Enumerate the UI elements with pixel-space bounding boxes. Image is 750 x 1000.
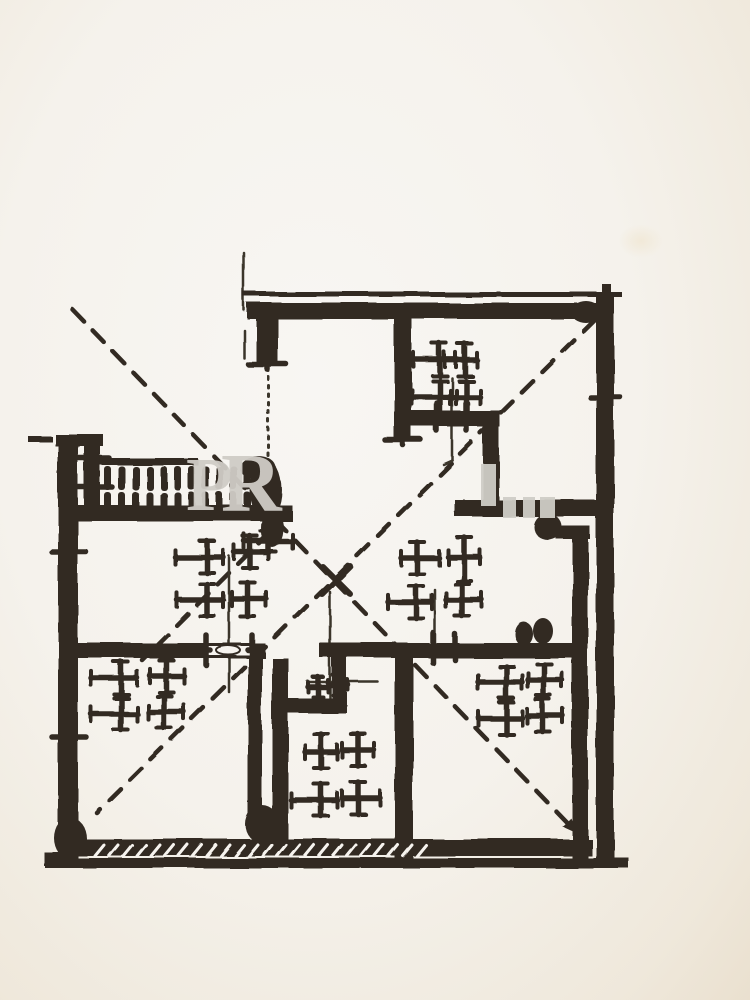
corner-blob-bottomleft [54,817,86,859]
railing-baluster [160,492,167,510]
railing-baluster [216,466,223,490]
wall-g [248,658,262,826]
midwall-blob-2 [533,618,553,644]
railing-baluster [132,492,139,510]
ink-layer [28,253,628,868]
railing-baluster [188,492,195,510]
railing-baluster [146,466,153,490]
railing-baluster [146,492,153,510]
railing-baluster [118,492,125,510]
railing-baluster [132,466,139,490]
floorplan-scan: P R [0,0,750,1000]
railing-baluster [202,466,209,490]
railing-baluster [202,492,209,510]
wall-i [395,643,413,858]
door-pivot-bottomleft [245,805,279,843]
railing-baluster [104,492,111,510]
wall-d [455,500,600,517]
railing-baluster [174,466,181,490]
right-wall [596,295,614,865]
wall-e [572,526,588,858]
railing-baluster [244,492,251,510]
door-pivot-terrace-tail [261,509,283,547]
top-thin-line [243,292,622,297]
window-lens-symbol [216,646,240,655]
midwall-blob-1 [515,622,533,646]
floorplan-svg [0,0,750,1000]
door-pivot-terrace-cap [240,456,276,480]
railing-baluster [216,492,223,510]
corner-blob-topright [571,301,601,323]
top-wall [247,303,613,319]
railing-baluster [230,492,237,510]
wall-c [483,425,499,507]
right-wall-stub [602,284,611,306]
railing-baluster [230,466,237,490]
left-stray-dash [28,436,52,442]
right-wall-foot [612,857,628,868]
railing-baluster [174,492,181,510]
wall-b [404,411,500,427]
bottom-outer-line [45,858,628,868]
railing-baluster [160,466,167,490]
railing-baluster [188,466,195,490]
wall-d-stub-blob [534,514,562,540]
railing-baluster [118,466,125,490]
